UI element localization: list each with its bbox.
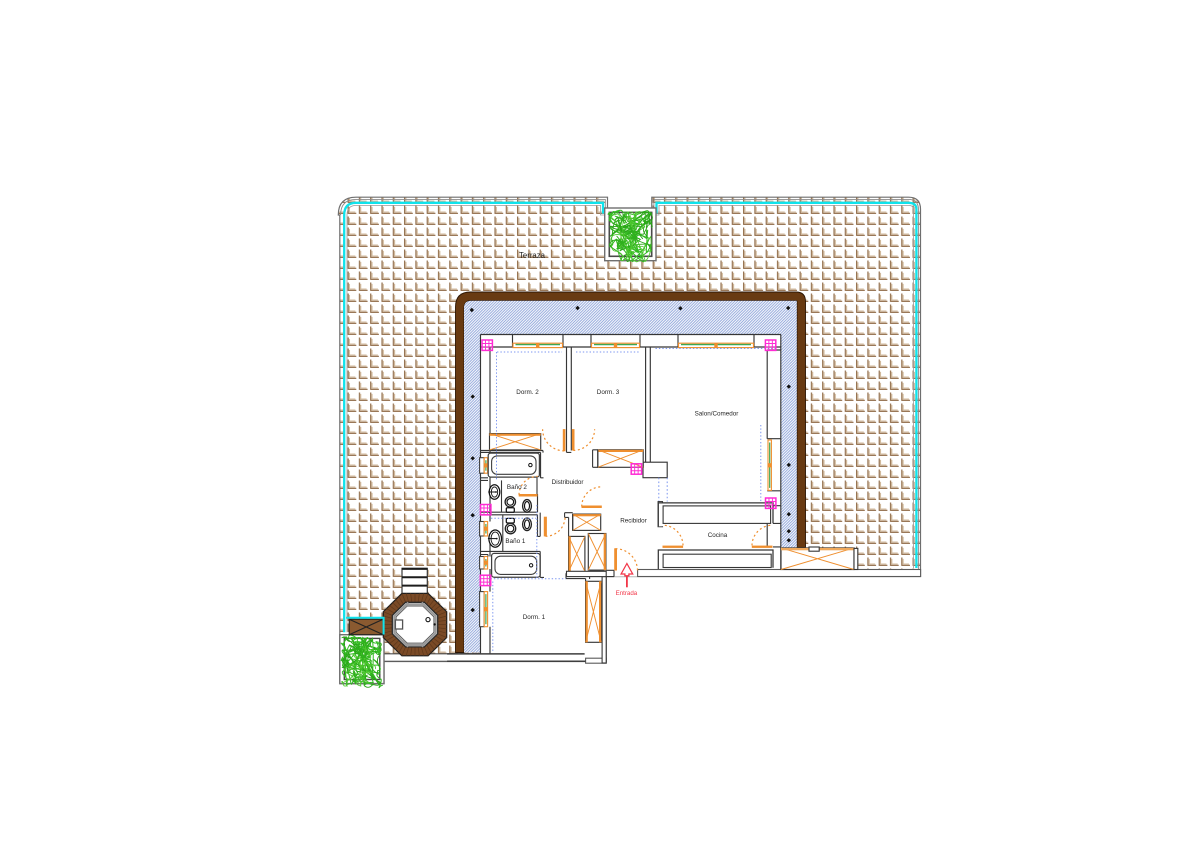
svg-text:Dorm. 3: Dorm. 3 <box>597 389 620 396</box>
svg-text:Recibidor: Recibidor <box>620 518 647 525</box>
svg-text:Dorm. 1: Dorm. 1 <box>523 614 546 621</box>
svg-text:Baño 2: Baño 2 <box>507 484 527 491</box>
svg-text:Baño 1: Baño 1 <box>505 538 525 545</box>
svg-text:Entrada: Entrada <box>616 590 638 597</box>
svg-text:Dorm. 2: Dorm. 2 <box>516 389 539 396</box>
svg-text:Cocina: Cocina <box>708 532 728 539</box>
svg-text:Terraza: Terraza <box>519 251 546 260</box>
svg-text:Salon/Comedor: Salon/Comedor <box>695 411 739 418</box>
svg-text:Distribuidor: Distribuidor <box>552 479 584 486</box>
